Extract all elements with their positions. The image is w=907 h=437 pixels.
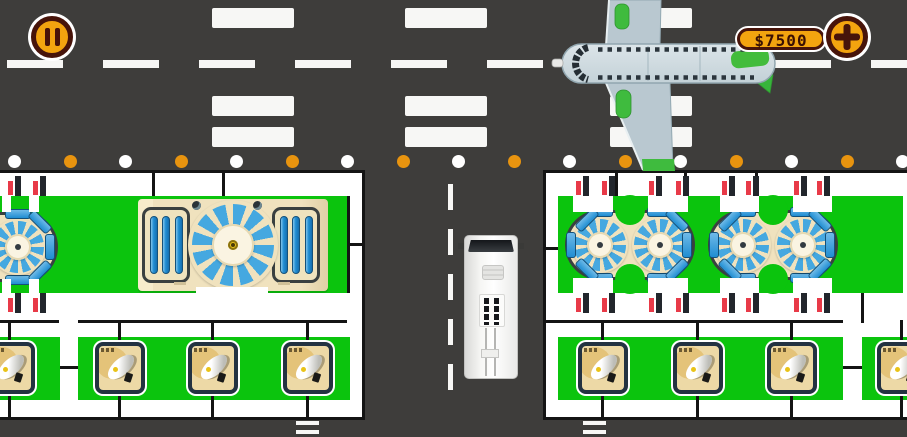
wall-line xyxy=(843,366,862,369)
label-marks xyxy=(289,348,304,352)
runway-edge-light xyxy=(508,155,521,168)
dish-feed-dot xyxy=(596,367,601,372)
wall-line xyxy=(306,394,309,417)
pause-button[interactable] xyxy=(31,16,73,58)
label-marks xyxy=(773,348,788,352)
flag-red xyxy=(676,298,681,312)
signal-flag xyxy=(794,293,807,313)
signal-flag xyxy=(676,293,689,313)
flag-red xyxy=(33,181,38,195)
runway-edge-light xyxy=(64,155,77,168)
wall-line xyxy=(0,417,365,420)
flag-red xyxy=(649,181,654,195)
dish-feed-dot xyxy=(895,367,900,372)
signal-flag xyxy=(794,176,807,196)
wall-line xyxy=(696,320,699,342)
label-marks xyxy=(278,282,290,285)
money-value: $7500 xyxy=(754,31,807,50)
wall-line xyxy=(546,320,843,323)
wall-line xyxy=(211,320,214,342)
hvac-fan-icon xyxy=(188,200,278,290)
truck[interactable] xyxy=(462,231,520,381)
vent-panel-left xyxy=(142,207,190,283)
flag-red xyxy=(676,181,681,195)
flag-dark xyxy=(15,176,21,196)
satellite-dish-unit xyxy=(877,342,907,394)
nose-probe xyxy=(552,59,563,67)
wall-line xyxy=(543,417,907,420)
flag-dark xyxy=(656,176,662,196)
runway-edge-light xyxy=(8,155,21,168)
satellite-dish-unit xyxy=(0,342,35,394)
flag-dark xyxy=(753,293,759,313)
stop-mark xyxy=(583,421,606,425)
flag-red xyxy=(8,181,13,195)
vent-panel-right xyxy=(272,207,320,283)
dish-mount xyxy=(312,372,321,383)
pole-base xyxy=(720,194,759,212)
vent-slat xyxy=(150,216,158,274)
dish-feed-dot xyxy=(301,367,306,372)
wing-upper xyxy=(606,0,661,46)
signal-flag xyxy=(649,176,662,196)
roof-notch xyxy=(615,195,645,225)
flag-dark xyxy=(683,176,689,196)
crosswalk-stripe xyxy=(212,127,294,147)
vent-slat xyxy=(162,216,170,274)
satellite-dish-unit xyxy=(767,342,817,394)
pole-base xyxy=(573,194,613,212)
dish-mount xyxy=(217,372,226,383)
runway-edge-light xyxy=(175,155,188,168)
flag-red xyxy=(576,298,581,312)
label-marks xyxy=(679,348,694,352)
pole-base xyxy=(648,194,688,212)
wall-line xyxy=(790,394,793,417)
wall-line xyxy=(900,320,903,342)
label-marks xyxy=(0,348,6,352)
dish-mount xyxy=(702,372,711,383)
signal-flag xyxy=(8,293,21,313)
flag-red xyxy=(602,181,607,195)
signal-flag xyxy=(746,176,759,196)
runway-edge-light xyxy=(286,155,299,168)
runway-edge-light xyxy=(785,155,798,168)
flag-dark xyxy=(656,293,662,313)
wall-line xyxy=(211,394,214,417)
flag-dark xyxy=(729,176,735,196)
flag-dark xyxy=(40,293,46,313)
wall-line xyxy=(350,243,365,246)
flag-red xyxy=(602,298,607,312)
lane-divider-vertical xyxy=(448,184,453,390)
flag-dark xyxy=(583,293,589,313)
signal-flag xyxy=(817,176,830,196)
wall-line xyxy=(601,394,604,417)
flag-dark xyxy=(729,293,735,313)
flag-red xyxy=(746,298,751,312)
wall-line xyxy=(790,320,793,342)
ladder-step xyxy=(481,349,499,358)
flag-dark xyxy=(683,293,689,313)
wall-line xyxy=(543,170,546,420)
hvac-unit xyxy=(138,199,328,291)
flag-red xyxy=(794,298,799,312)
stop-mark xyxy=(296,430,319,434)
runway-edge-light xyxy=(841,155,854,168)
roof-notch xyxy=(758,195,788,225)
satellite-dish-unit xyxy=(578,342,628,394)
screw-icon xyxy=(192,201,201,210)
runway-edge-light xyxy=(452,155,465,168)
roof-notch xyxy=(615,264,645,294)
dish-mount xyxy=(607,372,616,383)
pause-icon xyxy=(45,28,50,46)
label-marks xyxy=(584,348,599,352)
signal-flag xyxy=(8,176,21,196)
vent-rim xyxy=(45,234,55,260)
signal-flag xyxy=(33,293,46,313)
wall-line xyxy=(362,170,365,420)
signal-flag xyxy=(33,176,46,196)
add-money-button[interactable] xyxy=(826,16,868,58)
vent-slat xyxy=(175,216,183,274)
runway-edge-light xyxy=(119,155,132,168)
satellite-dish-unit xyxy=(188,342,238,394)
signal-flag xyxy=(576,293,589,313)
runway-edge-light xyxy=(341,155,354,168)
satellite-dish-unit xyxy=(95,342,145,394)
wall-line xyxy=(118,394,121,417)
vent-rim xyxy=(825,232,835,258)
wall-line xyxy=(8,394,11,417)
vent-slat xyxy=(292,216,300,274)
stop-mark xyxy=(583,430,606,434)
flag-red xyxy=(817,298,822,312)
vent-slat xyxy=(280,216,288,274)
wall-line xyxy=(546,247,558,250)
screw-icon xyxy=(253,201,262,210)
flag-red xyxy=(817,181,822,195)
game-viewport: $7500 xyxy=(0,0,907,437)
flag-red xyxy=(746,181,751,195)
flag-red xyxy=(576,181,581,195)
wingtip-green xyxy=(642,159,675,171)
pole-base xyxy=(2,195,11,212)
money-display: $7500 xyxy=(737,28,825,50)
stop-mark xyxy=(296,421,319,425)
plus-icon xyxy=(834,34,860,41)
signal-flag xyxy=(722,176,735,196)
label-marks xyxy=(174,282,186,285)
flag-red xyxy=(649,298,654,312)
roof-vent xyxy=(482,265,504,280)
flag-dark xyxy=(801,176,807,196)
runway-edge-light xyxy=(230,155,243,168)
roof-ladder xyxy=(479,294,505,327)
crosswalk-stripe xyxy=(405,127,487,147)
dish-mount xyxy=(14,372,23,383)
roof-notch xyxy=(758,264,788,294)
flag-red xyxy=(8,298,13,312)
dish-feed-dot xyxy=(785,367,790,372)
airplane[interactable] xyxy=(548,0,783,178)
wall-line xyxy=(696,394,699,417)
signal-flag xyxy=(676,176,689,196)
vent-rim xyxy=(566,232,576,258)
flag-dark xyxy=(801,293,807,313)
wall-line xyxy=(900,394,903,417)
crosswalk-stripe xyxy=(405,8,487,28)
vent-rim xyxy=(682,232,692,258)
crosswalk-stripe xyxy=(212,8,294,28)
flag-red xyxy=(794,181,799,195)
dish-feed-dot xyxy=(3,367,8,372)
signal-flag xyxy=(817,293,830,313)
flag-red xyxy=(33,298,38,312)
flag-dark xyxy=(609,176,615,196)
ladder-rail xyxy=(484,298,489,325)
windshield xyxy=(468,240,514,252)
pole-base xyxy=(196,287,268,298)
runway-edge-light xyxy=(896,155,907,168)
dish-mount xyxy=(124,372,133,383)
dish-feed-dot xyxy=(691,367,696,372)
satellite-dish-unit xyxy=(673,342,723,394)
flag-dark xyxy=(583,176,589,196)
satellite-dish-unit xyxy=(283,342,333,394)
pole-base xyxy=(793,194,832,212)
flag-dark xyxy=(753,176,759,196)
flag-dark xyxy=(824,176,830,196)
signal-flag xyxy=(602,176,615,196)
crosswalk-stripe xyxy=(212,96,294,116)
crosswalk-stripe xyxy=(405,96,487,116)
ladder-rail xyxy=(494,298,499,325)
flag-dark xyxy=(824,293,830,313)
label-marks xyxy=(194,348,209,352)
wall-line xyxy=(152,170,155,196)
flag-dark xyxy=(40,176,46,196)
pole-base xyxy=(29,195,39,212)
engine-icon xyxy=(615,4,629,29)
flag-red xyxy=(722,181,727,195)
vent-rim xyxy=(709,232,719,258)
wall-line xyxy=(60,366,78,369)
engine-icon xyxy=(616,90,631,118)
signal-flag xyxy=(722,293,735,313)
signal-flag xyxy=(649,293,662,313)
flag-dark xyxy=(15,293,21,313)
wall-line xyxy=(118,320,121,342)
wall-line xyxy=(0,170,365,173)
dish-mount xyxy=(796,372,805,383)
signal-flag xyxy=(602,293,615,313)
runway-edge-light xyxy=(397,155,410,168)
pause-icon xyxy=(55,28,60,46)
wall-line xyxy=(8,320,11,342)
wall-line xyxy=(222,170,225,196)
signal-flag xyxy=(746,293,759,313)
wall-line xyxy=(601,320,604,342)
wall-line xyxy=(306,320,309,342)
wall-line xyxy=(861,293,864,323)
flag-red xyxy=(722,298,727,312)
truck-body xyxy=(464,235,518,379)
flag-dark xyxy=(609,293,615,313)
signal-flag xyxy=(576,176,589,196)
label-marks xyxy=(883,348,898,352)
label-marks xyxy=(101,348,116,352)
vent-slat xyxy=(305,216,313,274)
dish-feed-dot xyxy=(206,367,211,372)
dish-feed-dot xyxy=(113,367,118,372)
